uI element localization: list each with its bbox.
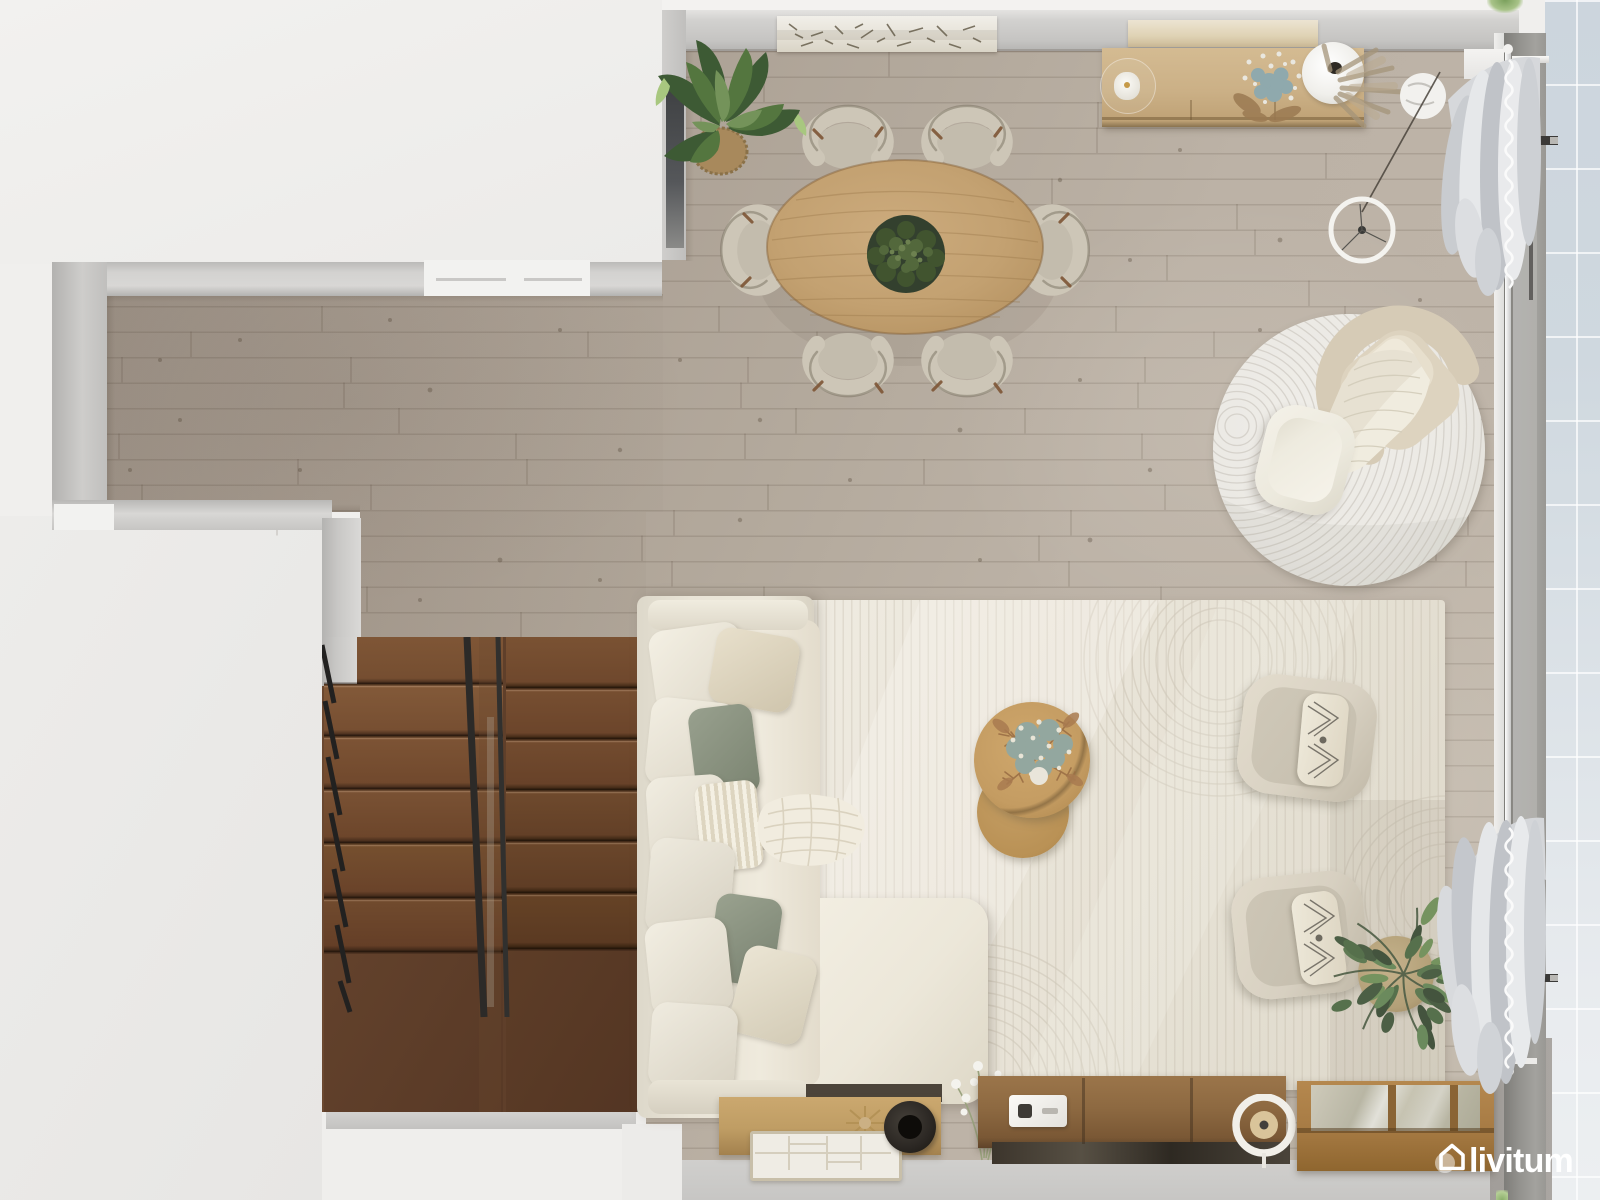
svg-text:livitum: livitum bbox=[1469, 1142, 1573, 1180]
